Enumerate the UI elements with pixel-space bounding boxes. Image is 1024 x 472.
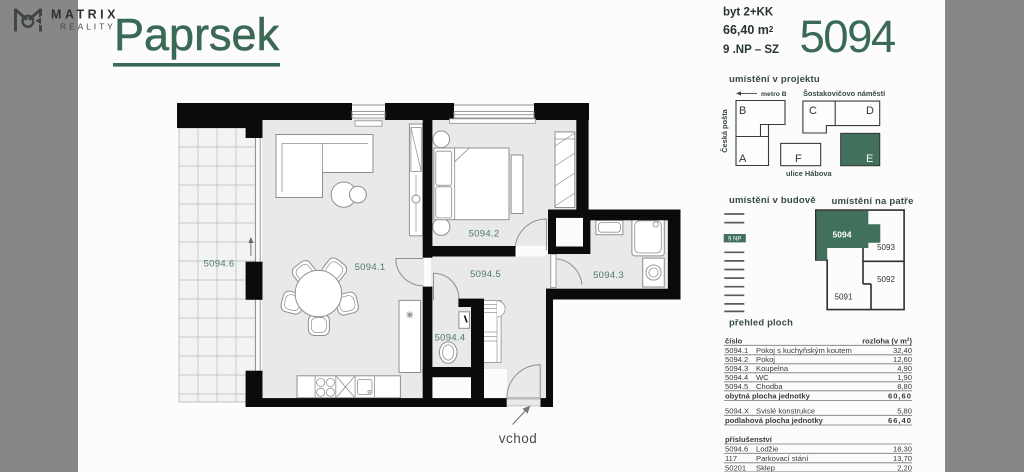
svg-text:32,40: 32,40 bbox=[893, 346, 912, 355]
svg-text:9 .NP – SZ: 9 .NP – SZ bbox=[723, 44, 779, 56]
svg-text:B: B bbox=[739, 105, 746, 117]
svg-text:18,30: 18,30 bbox=[893, 445, 912, 454]
svg-text:5092: 5092 bbox=[877, 275, 895, 284]
svg-text:5094.3: 5094.3 bbox=[725, 364, 748, 373]
svg-text:5091: 5091 bbox=[835, 293, 853, 302]
svg-text:2,20: 2,20 bbox=[897, 464, 912, 472]
svg-text:D: D bbox=[866, 105, 874, 117]
svg-text:5094: 5094 bbox=[833, 230, 852, 240]
svg-text:66,40 m2: 66,40 m2 bbox=[723, 23, 774, 37]
svg-text:Parkovací stání: Parkovací stání bbox=[756, 454, 809, 463]
svg-text:8,80: 8,80 bbox=[897, 382, 912, 391]
svg-text:vchod: vchod bbox=[499, 431, 538, 446]
svg-text:5094.1: 5094.1 bbox=[355, 262, 386, 273]
svg-text:5094.X: 5094.X bbox=[725, 407, 749, 416]
svg-text:umístění v projektu: umístění v projektu bbox=[729, 74, 820, 85]
svg-text:příslušenství: příslušenství bbox=[725, 435, 773, 444]
svg-text:4,90: 4,90 bbox=[897, 364, 912, 373]
svg-text:REALITY: REALITY bbox=[60, 22, 116, 32]
svg-text:12,60: 12,60 bbox=[893, 355, 912, 364]
svg-text:5094.3: 5094.3 bbox=[593, 270, 624, 281]
svg-text:5094.4: 5094.4 bbox=[725, 373, 748, 382]
svg-text:byt 2+KK: byt 2+KK bbox=[723, 6, 774, 18]
svg-text:obytná plocha jednotky: obytná plocha jednotky bbox=[725, 392, 811, 401]
svg-text:60,60: 60,60 bbox=[888, 392, 912, 401]
svg-text:Chodba: Chodba bbox=[756, 382, 783, 391]
svg-text:5094.6: 5094.6 bbox=[725, 445, 748, 454]
svg-text:5094.5: 5094.5 bbox=[725, 382, 748, 391]
svg-text:ulice Hábova: ulice Hábova bbox=[786, 169, 832, 178]
svg-text:50201: 50201 bbox=[725, 464, 746, 472]
svg-text:117: 117 bbox=[725, 454, 737, 463]
svg-text:5094.2: 5094.2 bbox=[469, 229, 500, 240]
svg-text:5094.2: 5094.2 bbox=[725, 355, 748, 364]
svg-text:číslo: číslo bbox=[725, 337, 743, 346]
svg-text:5094.1: 5094.1 bbox=[725, 346, 748, 355]
svg-text:MATRIX: MATRIX bbox=[51, 8, 119, 22]
svg-text:5094.6: 5094.6 bbox=[204, 259, 235, 270]
svg-text:umístění na patře: umístění na patře bbox=[832, 196, 914, 207]
svg-text:1,90: 1,90 bbox=[897, 373, 912, 382]
svg-text:9 NP: 9 NP bbox=[728, 236, 741, 242]
svg-text:přehled ploch: přehled ploch bbox=[729, 317, 793, 328]
svg-text:Svislé konstrukce: Svislé konstrukce bbox=[756, 407, 815, 416]
svg-text:metro B: metro B bbox=[761, 91, 787, 98]
svg-text:Česká pošta: Česká pošta bbox=[720, 108, 729, 152]
svg-text:C: C bbox=[809, 105, 817, 117]
svg-text:Pokoj s kuchyňským koutem: Pokoj s kuchyňským koutem bbox=[756, 346, 852, 355]
svg-text:5094.5: 5094.5 bbox=[470, 269, 501, 280]
svg-text:WC: WC bbox=[756, 373, 769, 382]
svg-text:5093: 5093 bbox=[877, 243, 895, 252]
svg-text:Koupelna: Koupelna bbox=[756, 364, 789, 373]
svg-text:A: A bbox=[739, 153, 747, 165]
svg-text:Šostakovičovo náměstí: Šostakovičovo náměstí bbox=[803, 89, 886, 98]
svg-text:Lodžie: Lodžie bbox=[756, 445, 778, 454]
svg-text:5094: 5094 bbox=[800, 11, 895, 62]
svg-text:Pokoj: Pokoj bbox=[756, 355, 775, 364]
svg-text:5094.4: 5094.4 bbox=[435, 333, 466, 344]
svg-text:E: E bbox=[866, 153, 873, 165]
svg-text:Paprsek: Paprsek bbox=[114, 9, 280, 60]
svg-text:Sklep: Sklep bbox=[756, 464, 775, 472]
svg-text:66,40: 66,40 bbox=[888, 416, 912, 425]
svg-text:rozloha (v m²): rozloha (v m²) bbox=[862, 337, 912, 346]
svg-text:podlahová plocha jednotky: podlahová plocha jednotky bbox=[725, 416, 824, 425]
svg-text:F: F bbox=[795, 153, 802, 165]
svg-text:5,80: 5,80 bbox=[897, 407, 912, 416]
svg-text:13,70: 13,70 bbox=[893, 454, 912, 463]
svg-text:umístění v budově: umístění v budově bbox=[729, 195, 816, 206]
